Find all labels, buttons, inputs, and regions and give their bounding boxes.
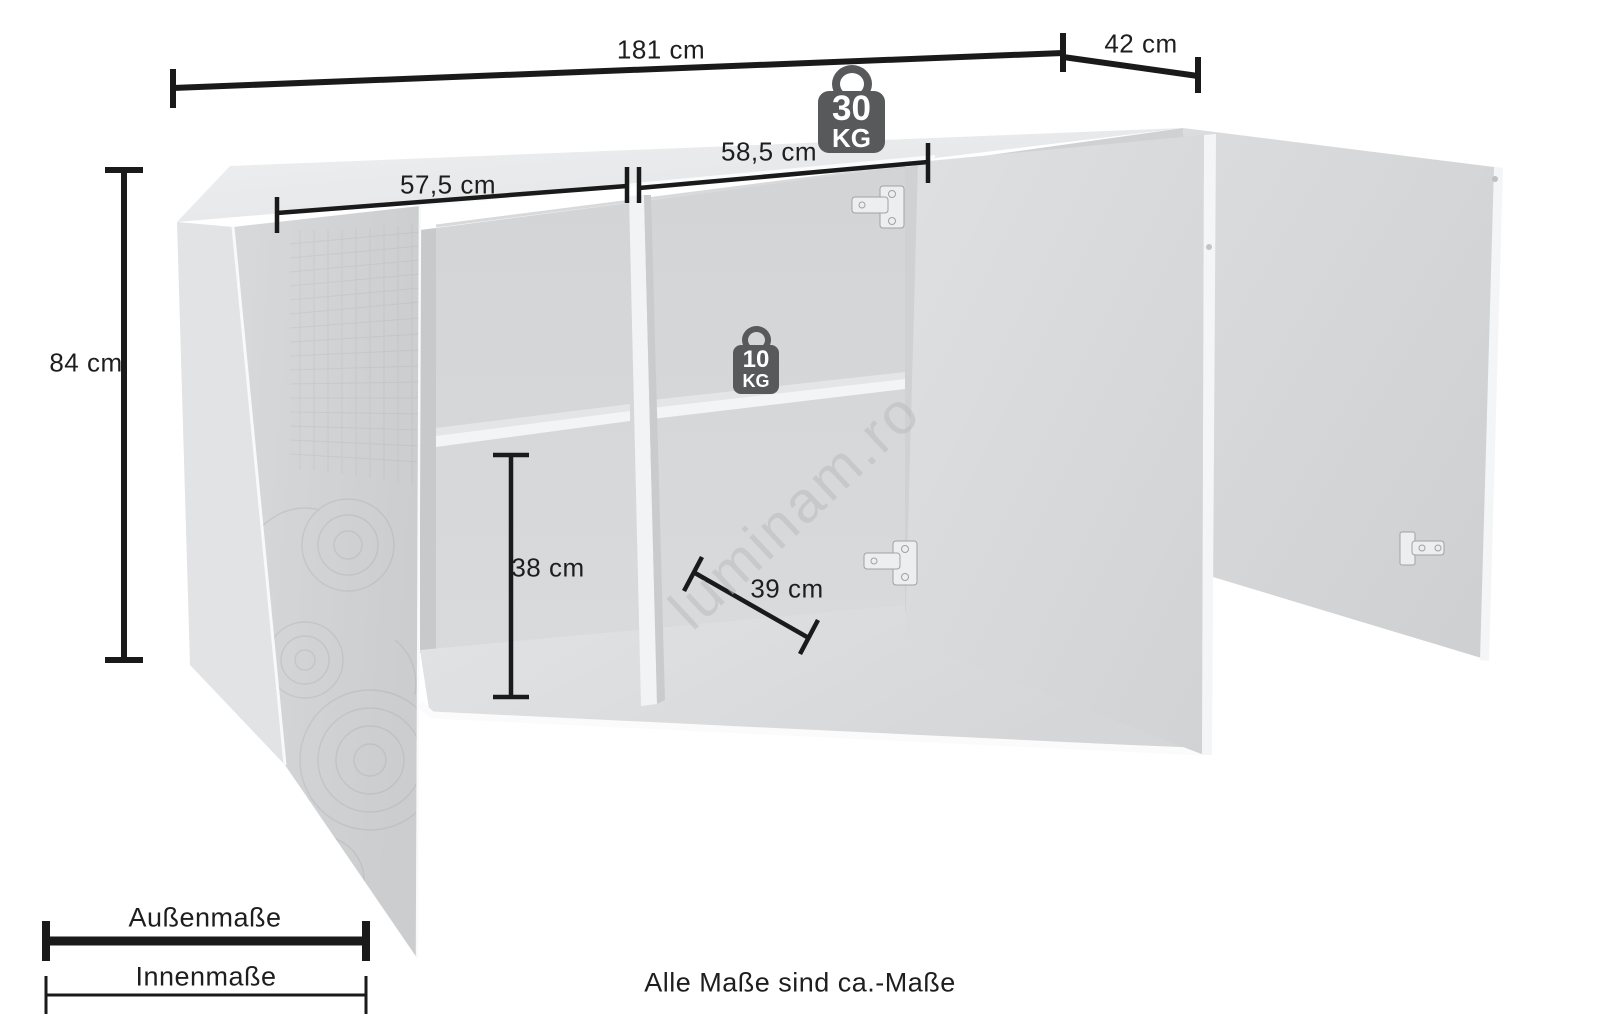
max-load-shelf-badge: 10 KG [733, 326, 779, 394]
dim-line-total-height [105, 170, 143, 660]
legend-outer-label: Außenmaße [128, 903, 281, 934]
max-load-shelf-value: 10 [743, 349, 770, 372]
cabinet-left-inner-wall [420, 228, 436, 653]
dim-inner-right-label: 58,5 cm [721, 137, 817, 168]
dim-total-depth-label: 42 cm [1104, 29, 1177, 60]
legend-inner-label: Innenmaße [135, 962, 276, 993]
max-load-top-badge: 30 KG [818, 65, 885, 153]
dim-total-height-label: 84 cm [49, 348, 122, 379]
max-load-shelf-unit: KG [743, 372, 770, 390]
footnote: Alle Maße sind ca.-Maße [644, 968, 956, 999]
max-load-top-unit: KG [832, 125, 871, 151]
right-door [1183, 128, 1503, 661]
dim-total-width-label: 181 cm [617, 35, 705, 66]
dim-lower-height-label: 38 cm [511, 553, 584, 584]
furniture-dimension-diagram: 181 cm 42 cm 84 cm 57,5 cm 58,5 cm 38 cm… [0, 0, 1600, 1031]
max-load-top-value: 30 [832, 93, 871, 125]
dim-line-total-depth [1063, 57, 1198, 93]
dim-inner-left-label: 57,5 cm [400, 170, 496, 201]
